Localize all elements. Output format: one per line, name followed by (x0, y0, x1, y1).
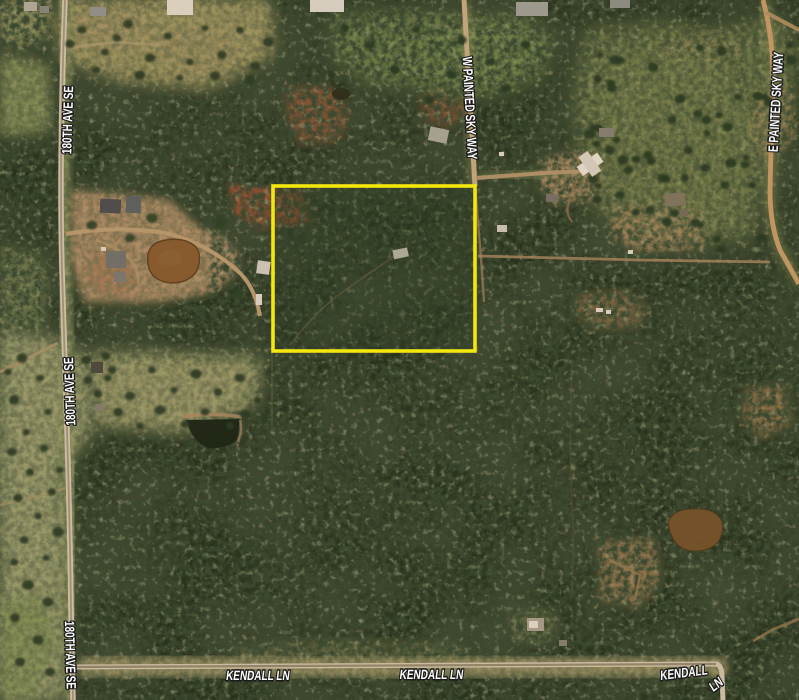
svg-text:180TH AVE SE: 180TH AVE SE (59, 86, 77, 155)
svg-text:KENDALL LN: KENDALL LN (225, 668, 291, 684)
svg-text:180TH AVE SE: 180TH AVE SE (61, 357, 79, 426)
svg-text:KENDALL LN: KENDALL LN (399, 667, 465, 683)
svg-text:180TH AVE SE: 180TH AVE SE (61, 621, 79, 690)
